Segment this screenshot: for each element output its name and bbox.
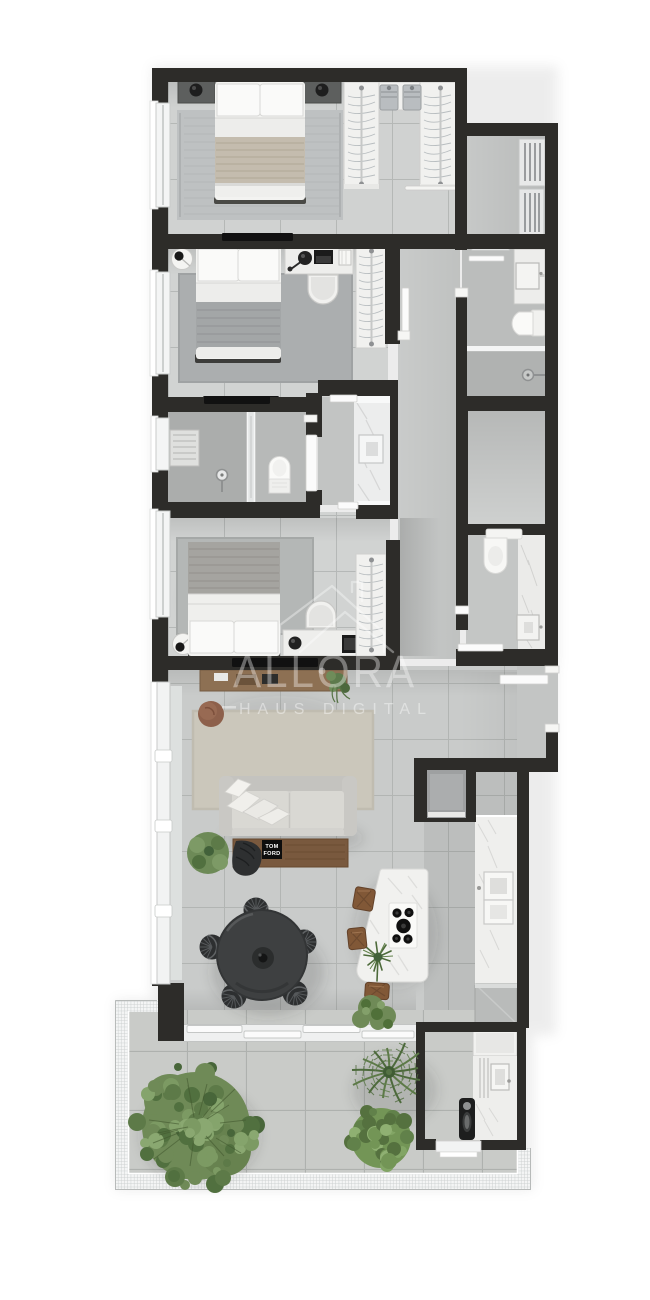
- svg-text:FORD: FORD: [263, 851, 280, 857]
- svg-text:HAUS DIGITAL: HAUS DIGITAL: [239, 701, 433, 718]
- svg-text:TOM: TOM: [265, 844, 278, 850]
- svg-text:ALLORA: ALLORA: [233, 646, 417, 697]
